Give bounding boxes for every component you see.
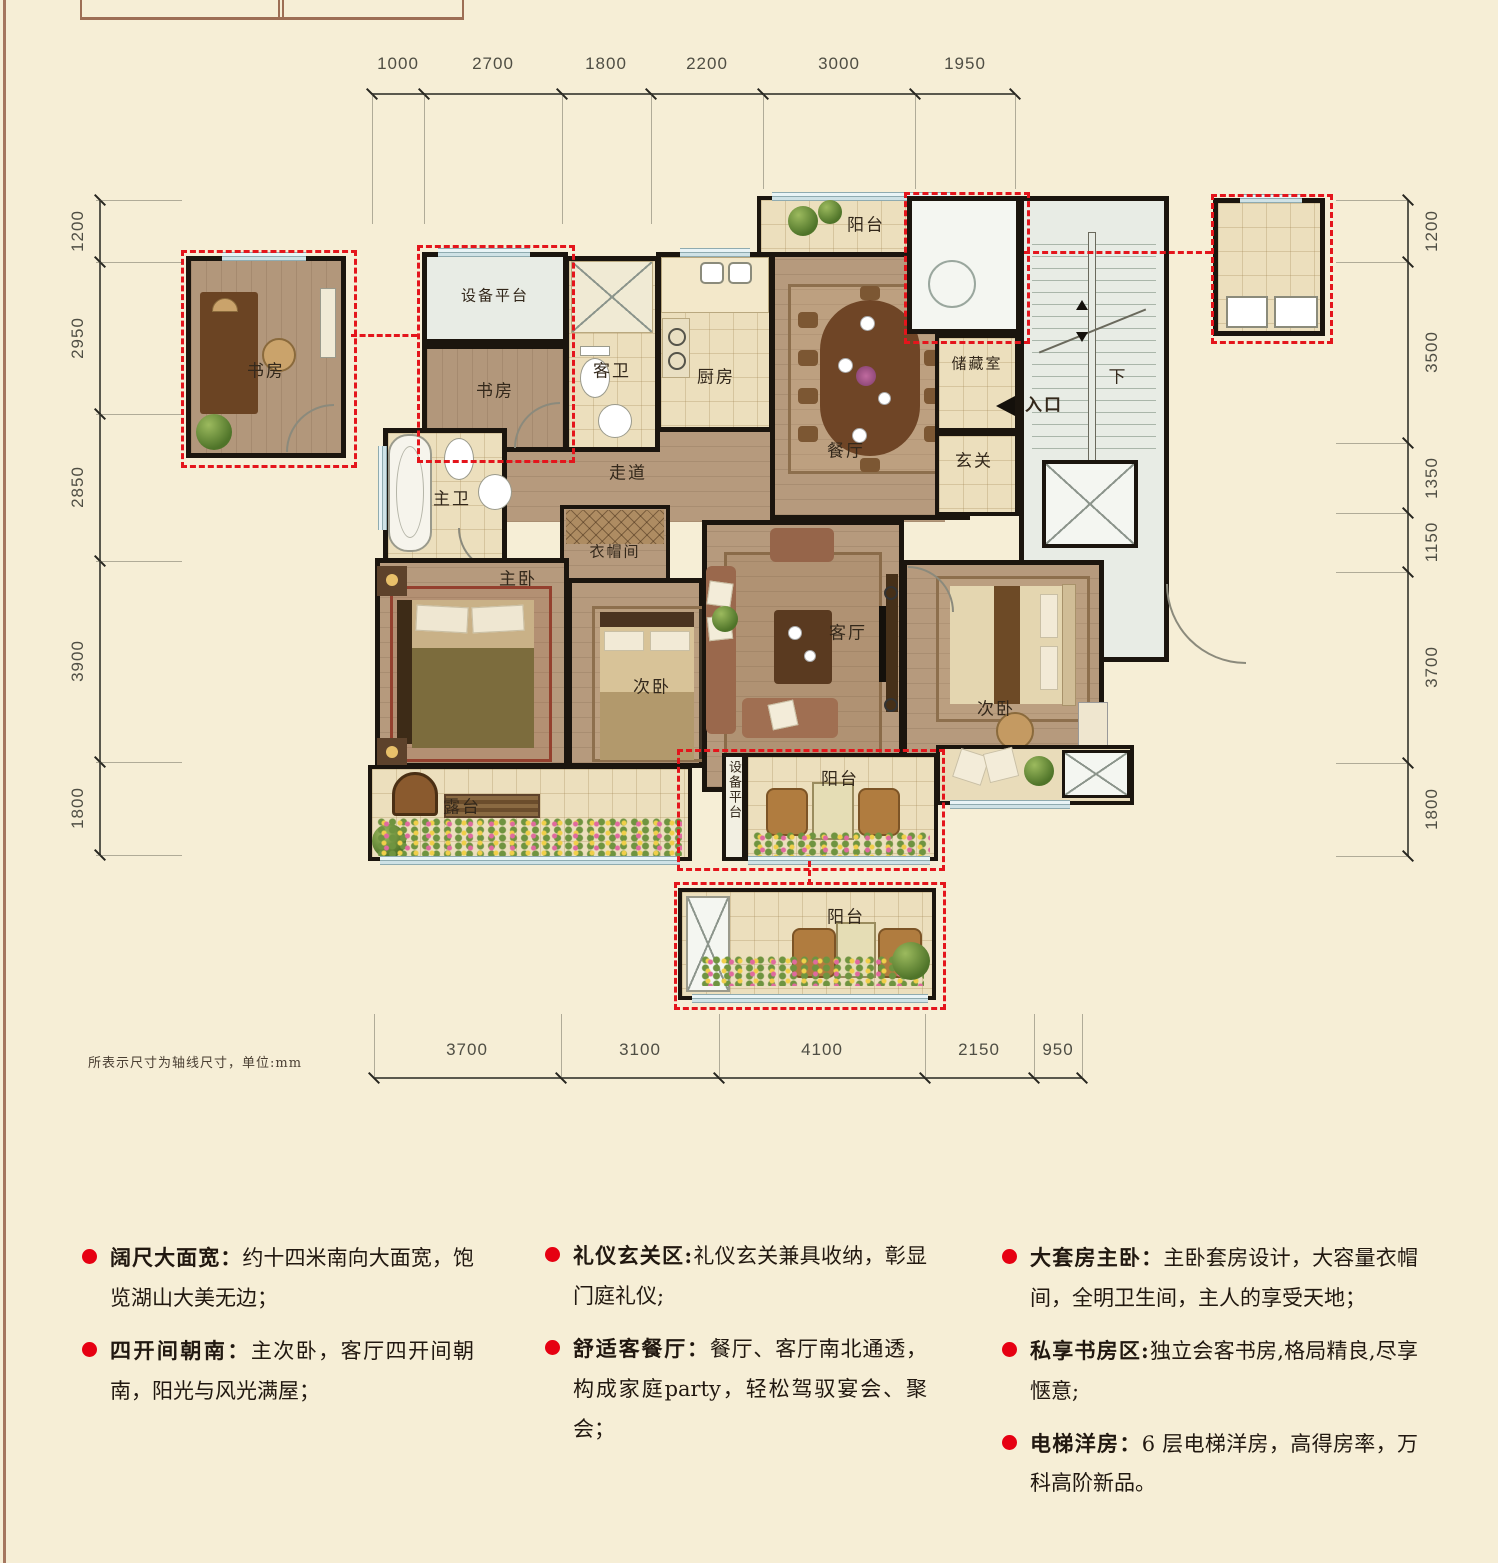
pillow [1040, 594, 1058, 638]
plant [1024, 756, 1054, 786]
stair-arrow-up-icon [1076, 300, 1088, 310]
room-label-bedroom-east: 次卧 [977, 702, 1015, 719]
dining-chair [798, 312, 818, 328]
dining-chair [860, 286, 880, 300]
plate [838, 358, 853, 373]
room-label-balcony-south: 阳台 [821, 772, 859, 789]
dim-label: 950 [1042, 1040, 1073, 1060]
room-label-study-gift: 书房 [247, 364, 285, 381]
dining-chair [798, 350, 818, 366]
feature-column-2: 礼仪玄关区:礼仪玄关兼具收纳，彰显门庭礼仪; 舒适客餐厅：餐厅、客厅南北通透，构… [545, 1236, 927, 1461]
dim-label: 3100 [619, 1040, 661, 1060]
dim-line-left [99, 200, 101, 855]
bath-sink [598, 404, 632, 438]
dim-label: 2700 [472, 54, 514, 74]
pillow [650, 631, 690, 651]
dim-ext [1082, 1014, 1083, 1078]
dim-ext [1015, 94, 1016, 189]
room-label-living: 客厅 [829, 626, 867, 643]
plan-note: 所表示尺寸为轴线尺寸，单位:mm [88, 1052, 302, 1071]
room-label-equipment-south: 设备平台 [724, 760, 743, 856]
room-label-guest-bath: 客卫 [593, 364, 631, 381]
toilet-tank [580, 346, 610, 356]
bed-runner [994, 586, 1020, 704]
dim-line-bottom [374, 1077, 1082, 1079]
bullet-icon [82, 1249, 97, 1264]
speaker [884, 698, 898, 712]
feature-item: 大套房主卧：主卧套房设计，大容量衣帽间，全明卫生间，主人的享受天地； [1002, 1238, 1418, 1319]
feature-label: 舒适客餐厅： [573, 1336, 710, 1361]
room-label-kitchen: 厨房 [697, 370, 735, 387]
dim-label: 3700 [1422, 646, 1442, 688]
gift-outline-balcony-south [677, 749, 945, 871]
dim-ext [1034, 1014, 1035, 1078]
dim-label: 2200 [686, 54, 728, 74]
terrace-flowers [376, 818, 682, 856]
room-label-storage: 储藏室 [951, 357, 1002, 372]
bullet-icon [1002, 1342, 1017, 1357]
feature-column-3: 大套房主卧：主卧套房设计，大容量衣帽间，全明卫生间，主人的享受天地； 私享书房区… [1002, 1238, 1418, 1516]
pillow [415, 605, 468, 634]
bullet-icon [1002, 1249, 1017, 1264]
room-label-foyer: 玄关 [955, 454, 993, 471]
dim-ext [562, 94, 563, 224]
dim-label: 1200 [68, 210, 88, 252]
window-seat [1062, 750, 1130, 798]
bullet-icon [545, 1247, 560, 1262]
dim-label: 2150 [958, 1040, 1000, 1060]
dim-ext [1336, 763, 1408, 764]
balcony-plant [818, 200, 842, 224]
dim-label: 1200 [1422, 210, 1442, 252]
dim-ext [96, 855, 182, 856]
gift-outline-equipment [417, 245, 575, 463]
feature-label: 电梯洋房： [1030, 1431, 1142, 1456]
dim-label: 4100 [801, 1040, 843, 1060]
feature-label: 四开间朝南： [110, 1338, 251, 1363]
master-headboard [397, 600, 412, 744]
dim-label: 1800 [585, 54, 627, 74]
entrance-arrow-icon [996, 396, 1015, 416]
gift-outline-bath [1211, 194, 1333, 344]
kitchen-window [680, 248, 750, 257]
elevator [1042, 460, 1138, 548]
dim-ext [96, 262, 182, 263]
bullet-icon [82, 1342, 97, 1357]
plant [712, 606, 738, 632]
dim-ext [763, 94, 764, 189]
bed-headboard [1062, 584, 1076, 706]
feature-item: 四开间朝南：主次卧，客厅四开间朝南，阳光与风光满屋； [82, 1331, 474, 1412]
dim-ext [96, 561, 182, 562]
armchair [770, 528, 834, 562]
dining-chair [798, 426, 818, 442]
feature-label: 礼仪玄关区: [573, 1243, 693, 1268]
dim-ext [372, 94, 373, 224]
stair-rail [1088, 232, 1096, 468]
dim-ext [96, 762, 182, 763]
dim-label: 1950 [944, 54, 986, 74]
feature-item: 礼仪玄关区:礼仪玄关兼具收纳，彰显门庭礼仪; [545, 1236, 927, 1317]
room-label-master-bath: 主卫 [433, 492, 471, 509]
dim-ext [1336, 443, 1408, 444]
dim-label: 3700 [446, 1040, 488, 1060]
room-label-balcony-north: 阳台 [847, 218, 885, 235]
dim-label: 3500 [1422, 331, 1442, 373]
dish [788, 626, 802, 640]
dim-ext [424, 94, 425, 224]
stove-burner [668, 352, 686, 370]
dining-chair [798, 388, 818, 404]
dim-label: 1800 [68, 787, 88, 829]
bedroom-east-window [950, 800, 1070, 809]
dim-ext [1336, 572, 1408, 573]
dim-ext [915, 94, 916, 189]
sofa-pillow [768, 700, 799, 731]
gift-connector [351, 334, 417, 337]
dim-ext [1336, 856, 1408, 857]
balcony-plant [788, 206, 818, 236]
dim-line-top [372, 93, 1015, 95]
dim-ext [96, 200, 182, 201]
gift-outline-study [181, 250, 357, 468]
brochure-page: 书房 设备平台 书房 客卫 厨房 阳台 餐厅 储藏室 玄关 走道 主卫 衣帽间 … [0, 0, 1498, 1563]
dim-ext [719, 1014, 720, 1078]
master-blanket [412, 648, 534, 748]
bed-headboard [600, 612, 694, 627]
lamp [386, 746, 398, 758]
dim-ext [651, 94, 652, 224]
entrance-label: 入口 [1025, 398, 1063, 415]
dim-label: 1150 [1422, 522, 1442, 563]
lamp [386, 574, 398, 586]
dim-ext [1336, 262, 1408, 263]
dim-label: 3000 [818, 54, 860, 74]
gift-connector [808, 861, 811, 885]
dim-ext [925, 1014, 926, 1078]
dish [804, 650, 816, 662]
room-label-cloakroom: 衣帽间 [589, 545, 640, 560]
stove-burner [668, 328, 686, 346]
terrace-window [380, 856, 680, 865]
tv [879, 606, 886, 682]
plate [878, 392, 891, 405]
pillow [1040, 646, 1058, 690]
room-label-equipment-top: 设备平台 [461, 289, 529, 304]
coffee-table [774, 610, 832, 684]
speaker [884, 586, 898, 600]
sofa-pillow [706, 580, 733, 607]
feature-item: 舒适客餐厅：餐厅、客厅南北通透，构成家庭party，轻松驾驭宴会、聚会； [545, 1329, 927, 1450]
bath-sink [478, 474, 512, 510]
stair-arrow-down-icon [1076, 332, 1088, 342]
feature-label: 大套房主卧： [1030, 1245, 1163, 1270]
dim-ext [1336, 200, 1408, 201]
side-table [1078, 702, 1108, 746]
dim-ext [374, 1014, 375, 1078]
dim-label: 2950 [68, 317, 88, 359]
dim-line-right [1407, 200, 1409, 856]
gift-outline-corner [904, 192, 1030, 344]
stair-down-label: 下 [1109, 370, 1128, 387]
kitchen-sink [728, 262, 752, 284]
dim-ext [96, 414, 182, 415]
dim-ext [561, 1014, 562, 1078]
pillow [471, 605, 524, 634]
dim-label: 1350 [1422, 457, 1442, 499]
room-label-study: 书房 [476, 384, 514, 401]
gift-outline-balcony-gift [674, 882, 946, 1010]
floor-plan: 书房 设备平台 书房 客卫 厨房 阳台 餐厅 储藏室 玄关 走道 主卫 衣帽间 … [0, 0, 1498, 1100]
room-label-master-bedroom: 主卧 [499, 572, 537, 589]
room-label-dining: 餐厅 [827, 444, 865, 461]
room-label-balcony-gift: 阳台 [827, 910, 865, 927]
room-label-corridor: 走道 [609, 466, 647, 483]
table-flowers [856, 366, 876, 386]
bullet-icon [545, 1340, 560, 1355]
master-bath-window [378, 446, 387, 530]
terrace-oven [392, 772, 438, 816]
room-storage [935, 334, 1019, 432]
cloakroom-closet [566, 510, 664, 544]
dim-label: 1000 [377, 54, 419, 74]
room-label-terrace: 露台 [443, 800, 481, 817]
laundry-rack [571, 261, 653, 333]
plate [860, 316, 875, 331]
feature-item: 电梯洋房：6 层电梯洋房，高得房率，万科高阶新品。 [1002, 1424, 1418, 1505]
feature-item: 阔尺大面宽：约十四米南向大面宽，饱览湖山大美无边； [82, 1238, 474, 1319]
dim-label: 1800 [1422, 788, 1442, 830]
pillow [604, 631, 644, 651]
feature-label: 阔尺大面宽： [110, 1245, 242, 1270]
gift-connector [1024, 251, 1211, 254]
room-foyer [935, 432, 1019, 516]
feature-column-1: 阔尺大面宽：约十四米南向大面宽，饱览湖山大美无边； 四开间朝南：主次卧，客厅四开… [82, 1238, 474, 1424]
kitchen-sink [700, 262, 724, 284]
feature-label: 私享书房区: [1030, 1338, 1150, 1363]
room-label-bedroom-mid: 次卧 [633, 680, 671, 697]
dim-label: 3900 [68, 640, 88, 682]
dim-ext [1336, 513, 1408, 514]
bullet-icon [1002, 1435, 1017, 1450]
entry-door-arc [1166, 584, 1246, 664]
dim-label: 2850 [68, 466, 88, 508]
feature-item: 私享书房区:独立会客书房,格局精良,尽享惬意; [1002, 1331, 1418, 1412]
